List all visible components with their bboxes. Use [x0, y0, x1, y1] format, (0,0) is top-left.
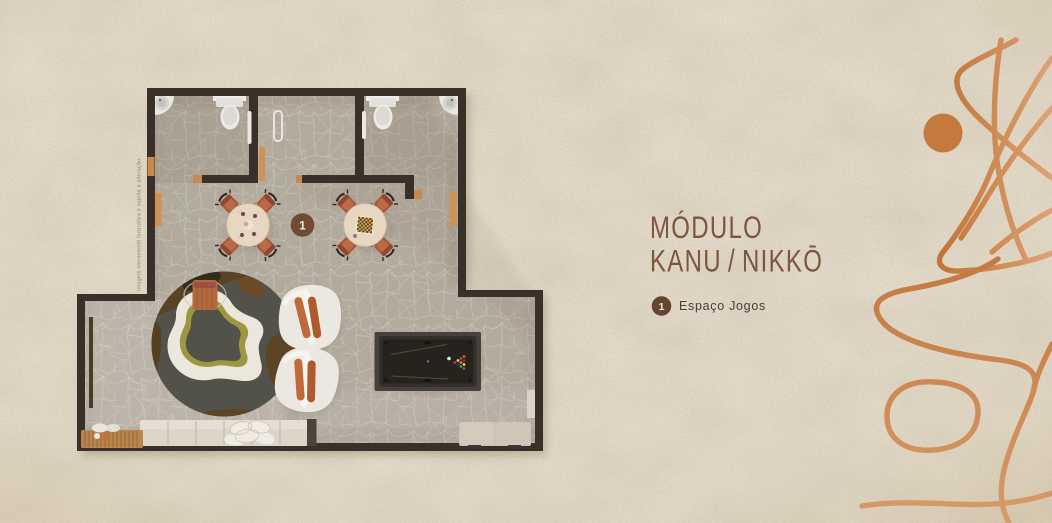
svg-text:1: 1	[659, 301, 665, 313]
svg-text:Espaço Jogos: Espaço Jogos	[679, 299, 766, 313]
svg-text:Imagem meramente ilustrativa e: Imagem meramente ilustrativa e sujeita a…	[137, 157, 143, 291]
svg-text:1: 1	[299, 219, 306, 233]
svg-text:KANU / NIKKŌ: KANU / NIKKŌ	[650, 243, 823, 278]
svg-text:MÓDULO: MÓDULO	[650, 210, 763, 245]
